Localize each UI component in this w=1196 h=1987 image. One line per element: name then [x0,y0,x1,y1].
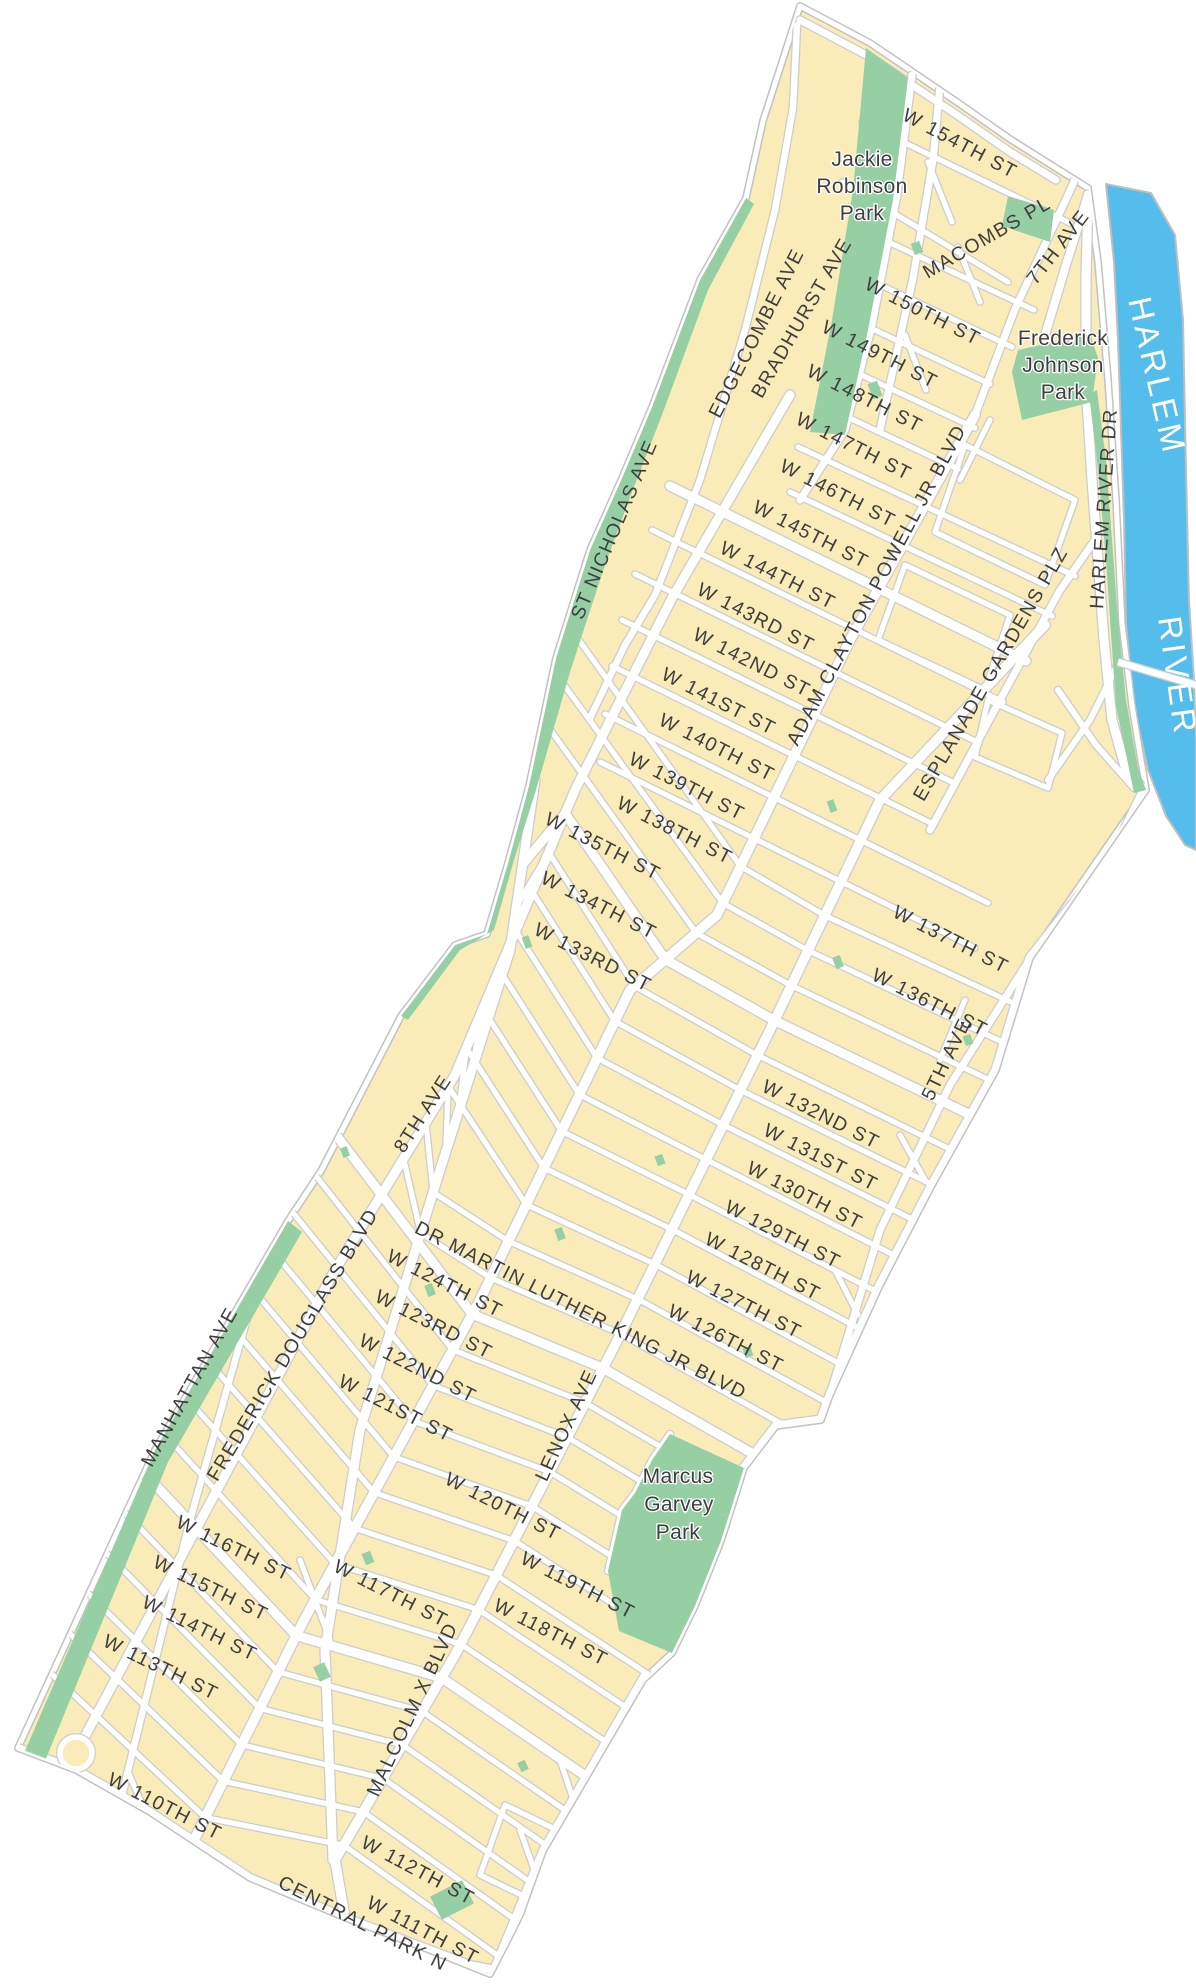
svg-text:Frederick: Frederick [1018,327,1108,350]
svg-text:Park: Park [840,202,885,225]
svg-text:Marcus: Marcus [643,1465,714,1488]
svg-text:Park: Park [656,1521,701,1544]
svg-text:Johnson: Johnson [1022,354,1104,377]
svg-text:Robinson: Robinson [816,175,907,198]
svg-text:Garvey: Garvey [644,1493,714,1516]
svg-text:Park: Park [1041,381,1086,404]
svg-text:Jackie: Jackie [831,148,892,171]
